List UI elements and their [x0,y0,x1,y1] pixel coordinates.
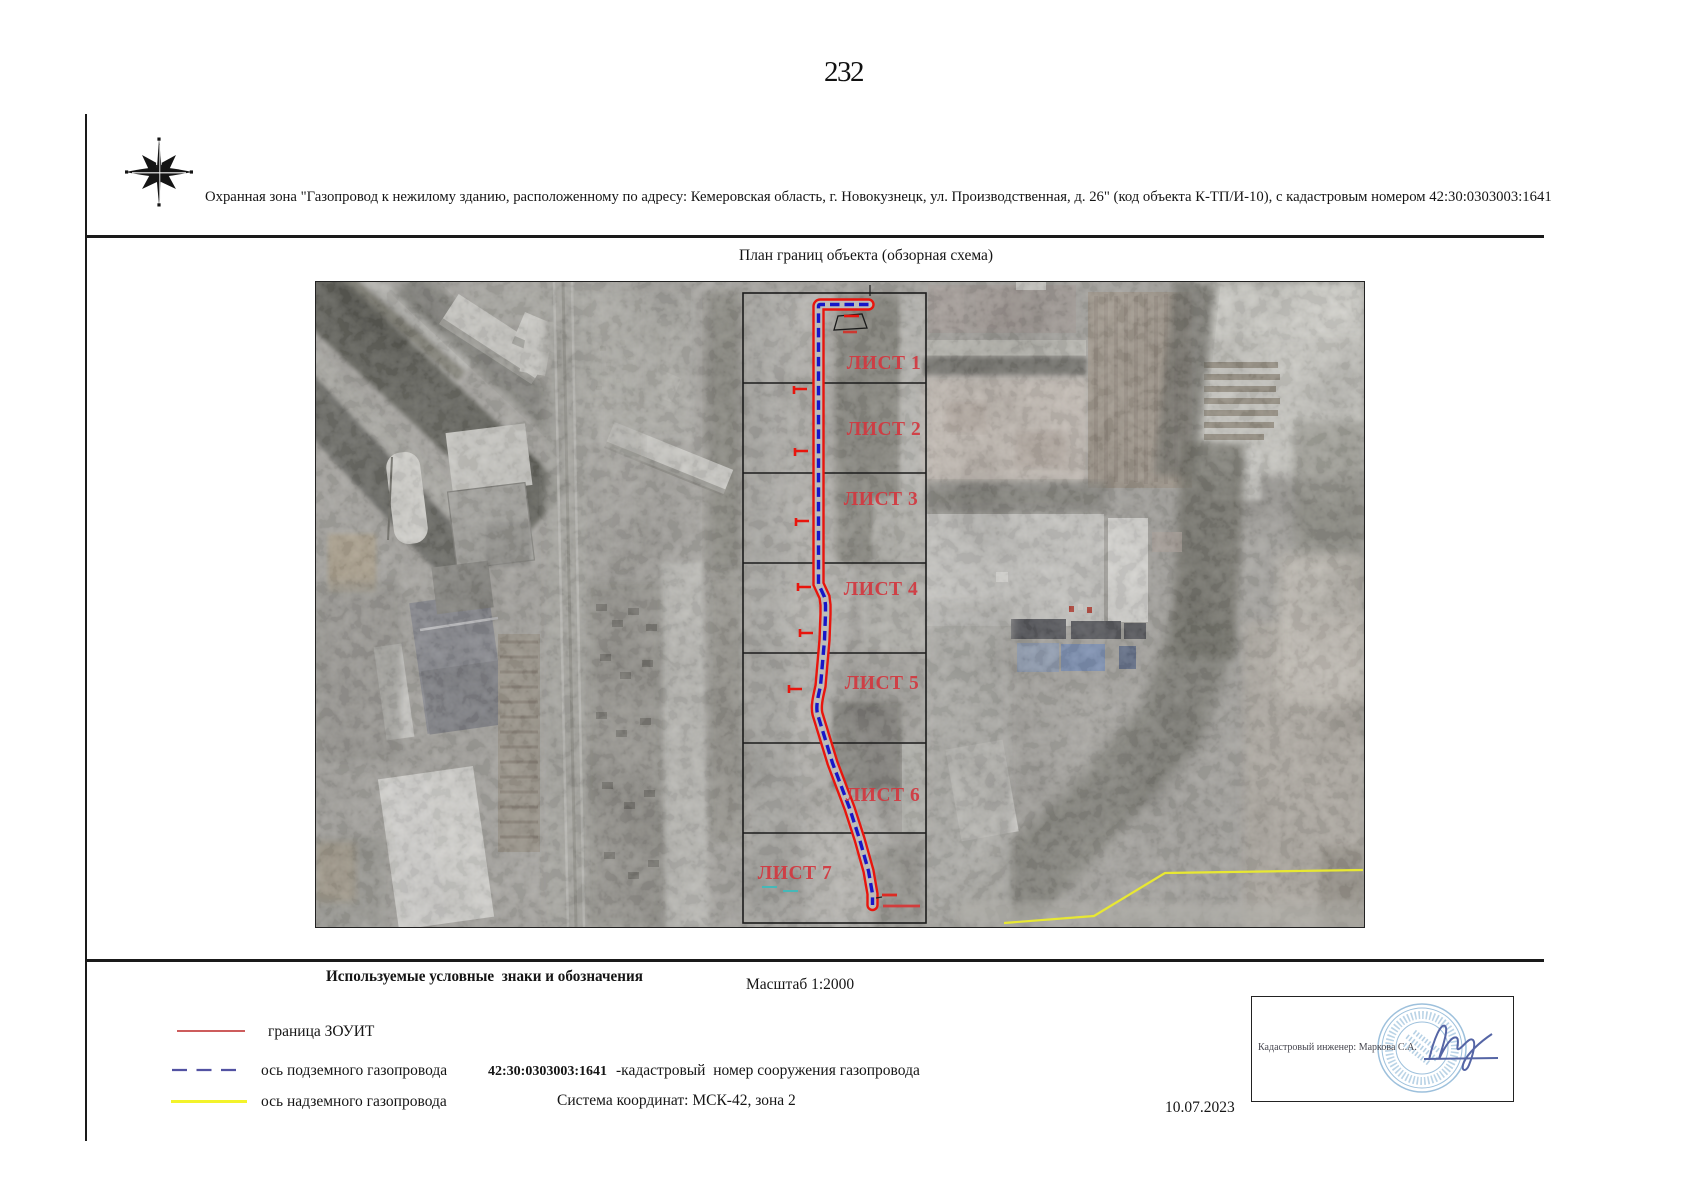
svg-text:ЛИСТ 4: ЛИСТ 4 [844,579,918,600]
svg-text:ЛИСТ 6: ЛИСТ 6 [846,785,920,806]
svg-text:ЛИСТ 3: ЛИСТ 3 [844,489,918,510]
svg-text:ЛИСТ 7: ЛИСТ 7 [758,863,832,884]
svg-text:ЛИСТ 1: ЛИСТ 1 [847,353,921,374]
svg-text:ЛИСТ 2: ЛИСТ 2 [847,419,921,440]
svg-text:ЛИСТ 5: ЛИСТ 5 [845,673,919,694]
